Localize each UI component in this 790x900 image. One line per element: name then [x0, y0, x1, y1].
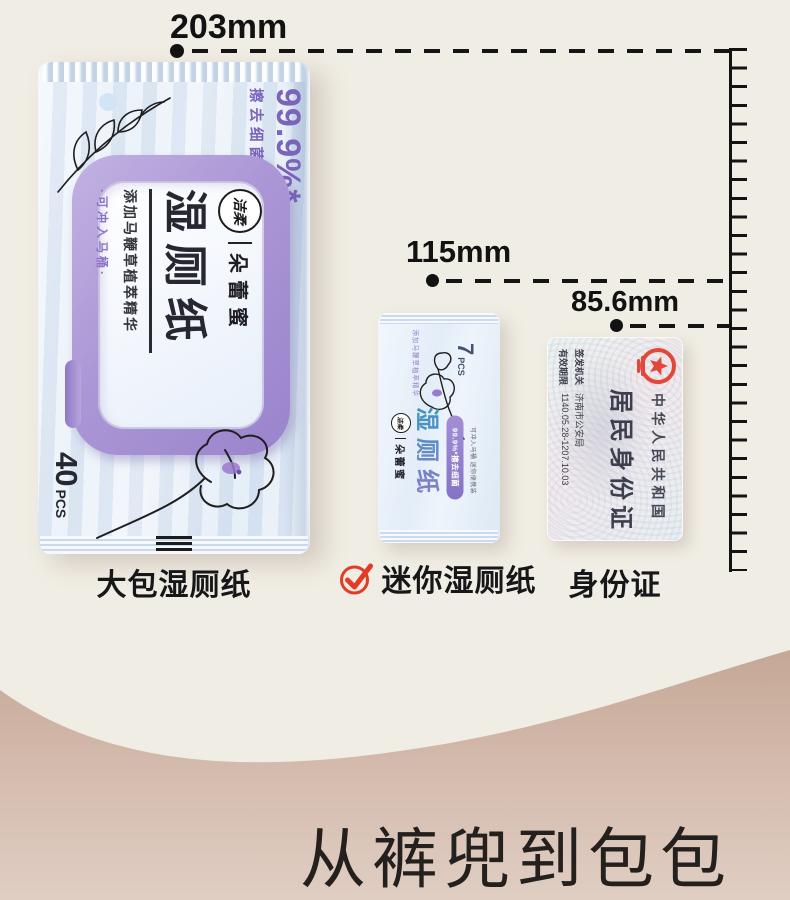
id-validity-label: 有效期限 — [557, 349, 570, 385]
ruler-ticks — [732, 48, 747, 571]
flower-lineart-icon — [93, 420, 303, 548]
mini-wipes-pack: 添加马鞭草植萃精华 7 PCS 洁柔 朵蕾蜜 湿厕纸 99.9%*擦去细菌 可冲… — [378, 313, 500, 543]
lid-printed-content: 洁柔 朵蕾蜜 湿厕纸 添加马鞭草植萃精华 ·可冲入马桶· — [98, 181, 264, 429]
measure-dot-card — [610, 319, 623, 332]
measure-dot-large — [170, 44, 184, 58]
measure-dashline-large — [192, 49, 730, 53]
measure-dashline-card — [630, 324, 730, 328]
brand-divider — [228, 242, 252, 244]
measure-dot-mini — [426, 274, 439, 287]
mini-bottom-crimp — [380, 530, 498, 543]
flip-lid: 洁柔 朵蕾蜜 湿厕纸 添加马鞭草植萃精华 ·可冲入马桶· — [72, 155, 290, 455]
id-validity-row: 有效期限 1140.05.28-1207.10.03 — [557, 349, 570, 485]
count-unit: PCS — [53, 489, 69, 518]
mini-germ-badge: 99.9%*擦去细菌 — [447, 416, 464, 500]
id-issuer-row: 签发机关 济南市公安局 — [573, 349, 586, 447]
id-issuer-value: 济南市公安局 — [573, 393, 586, 447]
id-card-content: 中华人民共和国 居民身份证 签发机关 济南市公安局 有效期限 1140.05.2… — [547, 337, 683, 541]
mini-brand-divider — [396, 438, 407, 439]
label-large-pack: 大包湿厕纸 — [97, 560, 252, 604]
flushable-note: ·可冲入马桶· — [94, 189, 111, 429]
label-mini-pack: 迷你湿厕纸 — [382, 556, 537, 600]
mini-brand-row: 洁柔 朵蕾蜜 — [390, 413, 412, 497]
product-name: 湿厕纸 — [149, 189, 209, 353]
count-label: 40 PCS — [48, 452, 84, 548]
mini-portable-note: 可冲入马桶 迷你便携装 — [466, 427, 478, 493]
mini-brand-logo: 洁柔 — [391, 413, 411, 433]
count-number: 40 — [48, 452, 84, 486]
mini-series-name: 朵蕾蜜 — [394, 444, 409, 482]
label-id-card: 身份证 — [569, 560, 662, 604]
check-circle-icon — [338, 560, 374, 596]
measure-mini-pack: 115mm — [406, 234, 511, 270]
large-wipes-pack: 99.9%* 擦去细菌 洁柔 朵蕾蜜 湿厕纸 添加马鞭草植萃精华 ·可冲入马桶·… — [38, 62, 310, 554]
measure-dashline-mini — [446, 279, 730, 283]
brand-logo: 洁柔 — [218, 189, 262, 233]
headline: 从裤兜到包包 — [300, 806, 732, 900]
mini-product-name: 湿厕纸 — [417, 407, 447, 503]
measure-large-pack: 203mm — [170, 8, 287, 47]
promo-page: 203mm 115mm 85.6mm 99.9 — [0, 0, 790, 900]
mini-count-label: 7 PCS — [452, 343, 478, 381]
measure-id-card: 85.6mm — [571, 286, 679, 319]
national-emblem-icon — [635, 347, 677, 385]
brand-row: 洁柔 朵蕾蜜 — [218, 189, 262, 429]
lid-latch — [65, 360, 81, 428]
label-mini-pack-group: 迷你湿厕纸 — [338, 556, 537, 600]
series-name: 朵蕾蜜 — [226, 253, 255, 334]
id-card-title: 居民身份证 — [606, 389, 641, 534]
id-issuer-label: 签发机关 — [573, 349, 586, 385]
ingredient-tagline: 添加马鞭草植萃精华 — [120, 189, 140, 429]
id-card: 中华人民共和国 居民身份证 签发机关 济南市公安局 有效期限 1140.05.2… — [547, 337, 683, 541]
mini-top-crimp — [380, 313, 498, 324]
mini-count-unit: PCS — [456, 357, 466, 376]
mini-count-number: 7 — [452, 343, 478, 355]
id-validity-value: 1140.05.28-1207.10.03 — [557, 393, 570, 485]
pack-top-crimp — [42, 62, 306, 82]
id-country-name: 中华人民共和国 — [648, 393, 668, 523]
